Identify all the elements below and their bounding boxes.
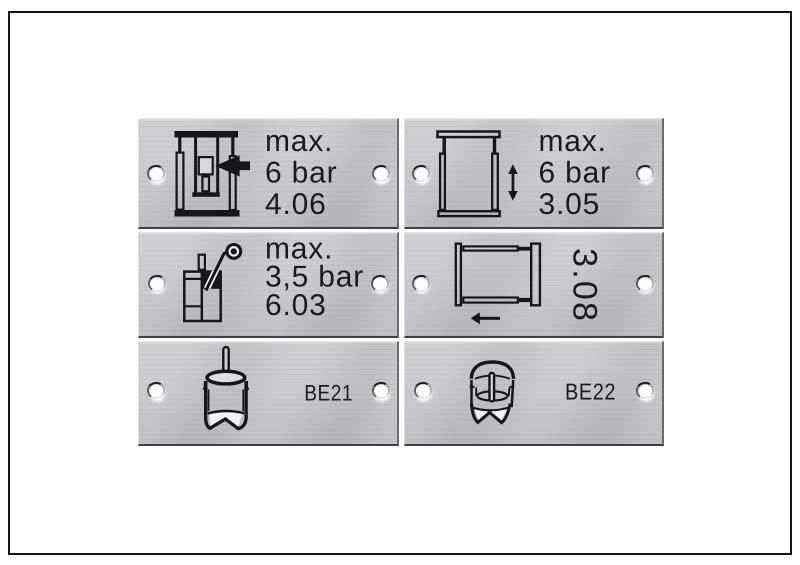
svg-text:3.08: 3.08 — [566, 248, 604, 323]
svg-text:BE22: BE22 — [565, 378, 616, 404]
svg-text:6 bar: 6 bar — [265, 157, 337, 190]
svg-text:max.: max. — [265, 125, 333, 158]
svg-text:BE21: BE21 — [304, 380, 353, 405]
svg-text:max.: max. — [539, 125, 607, 158]
svg-text:4.06: 4.06 — [265, 188, 327, 221]
svg-text:3.05: 3.05 — [539, 188, 601, 221]
svg-text:6 bar: 6 bar — [539, 157, 611, 190]
svg-text:6.03: 6.03 — [265, 289, 327, 322]
